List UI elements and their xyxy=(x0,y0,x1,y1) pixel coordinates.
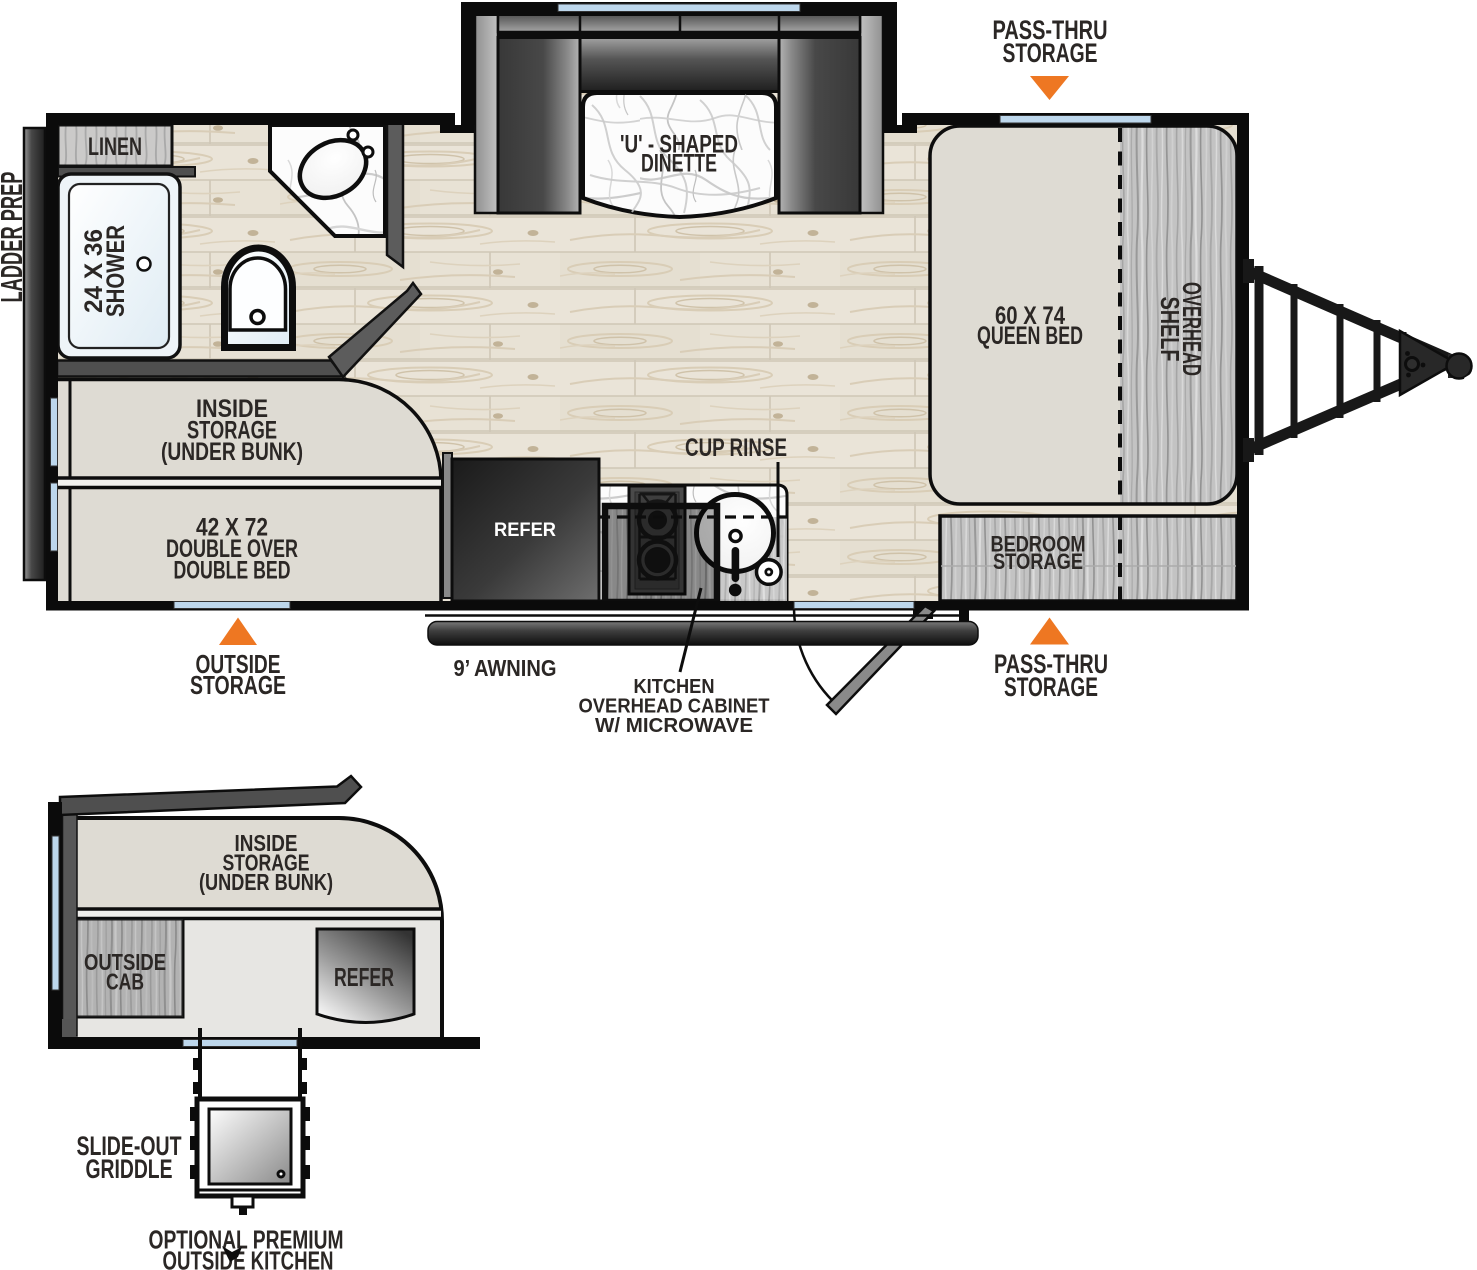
svg-text:REFER: REFER xyxy=(494,520,556,541)
svg-text:SHELF: SHELF xyxy=(1155,297,1185,362)
svg-text:SHOWER: SHOWER xyxy=(102,225,130,317)
svg-text:CUP RINSE: CUP RINSE xyxy=(685,434,787,462)
svg-text:LINEN: LINEN xyxy=(88,133,142,161)
svg-text:9’ AWNING: 9’ AWNING xyxy=(454,655,557,681)
svg-text:W/ MICROWAVE: W/ MICROWAVE xyxy=(595,715,753,737)
svg-text:STORAGE: STORAGE xyxy=(1003,38,1098,68)
svg-text:(UNDER BUNK): (UNDER BUNK) xyxy=(199,869,333,895)
svg-text:(UNDER BUNK): (UNDER BUNK) xyxy=(161,438,303,466)
svg-text:LADDER PREP: LADDER PREP xyxy=(0,172,29,303)
svg-text:STORAGE: STORAGE xyxy=(993,549,1083,574)
svg-text:CAB: CAB xyxy=(106,969,144,995)
svg-text:OUTSIDE KITCHEN: OUTSIDE KITCHEN xyxy=(163,1246,334,1270)
svg-text:STORAGE: STORAGE xyxy=(1004,672,1098,702)
svg-text:GRIDDLE: GRIDDLE xyxy=(86,1154,173,1184)
svg-text:STORAGE: STORAGE xyxy=(190,670,286,700)
svg-text:QUEEN BED: QUEEN BED xyxy=(977,322,1083,350)
svg-text:REFER: REFER xyxy=(334,962,394,992)
svg-text:DOUBLE BED: DOUBLE BED xyxy=(174,557,291,585)
svg-text:DINETTE: DINETTE xyxy=(641,150,717,178)
